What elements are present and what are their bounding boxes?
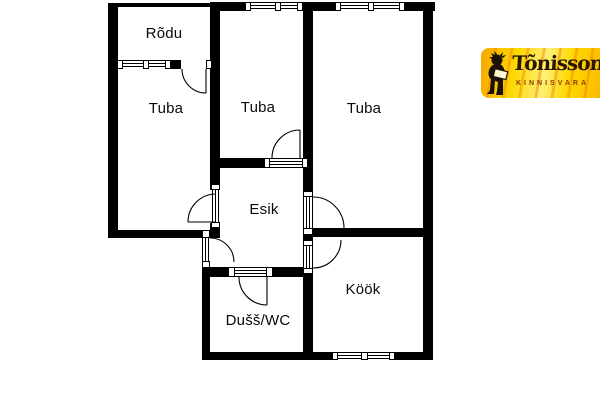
room-label-dush-wc: Dušš/WC bbox=[198, 312, 318, 329]
room-label-tuba-middle: Tuba bbox=[198, 99, 318, 116]
door-swing-arc bbox=[239, 277, 267, 305]
room-label-esik: Esik bbox=[204, 201, 324, 218]
room-label-rodu: Rõdu bbox=[104, 25, 224, 42]
agency-logo: Tõnisson KINNISVARA bbox=[481, 48, 600, 98]
room-label-kook: Köök bbox=[303, 281, 423, 298]
logo-tagline-text: KINNISVARA bbox=[516, 80, 589, 87]
door-swing-arc bbox=[210, 238, 234, 262]
door-swing-arc bbox=[313, 240, 341, 268]
door-swing-arc bbox=[182, 69, 206, 93]
door-swing-arc bbox=[272, 130, 300, 158]
logo-brand-text: Tõnisson bbox=[511, 51, 600, 75]
mascot-figure-icon bbox=[484, 51, 512, 97]
room-label-tuba-right: Tuba bbox=[304, 100, 424, 117]
